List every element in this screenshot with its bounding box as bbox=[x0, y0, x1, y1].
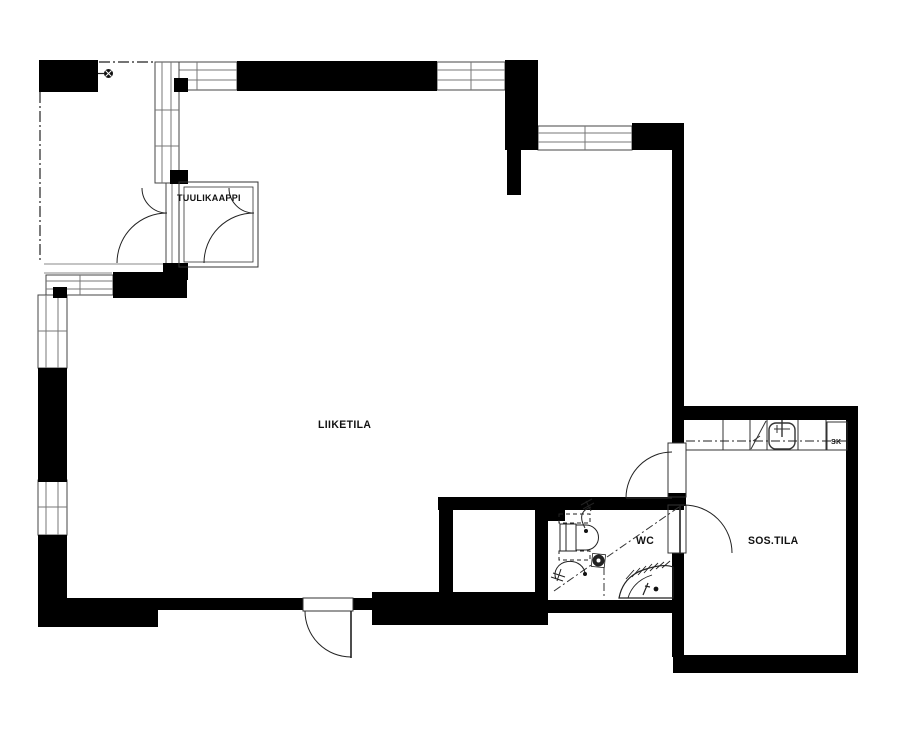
room-label-wc: WC bbox=[636, 535, 654, 547]
door-wc bbox=[680, 505, 732, 553]
door-frame bbox=[668, 505, 686, 553]
floor-plan: TUULIKAAPPI LIIKETILA WC SOS.TILA SK bbox=[0, 0, 905, 741]
wall-segment bbox=[38, 368, 67, 482]
window bbox=[38, 480, 67, 535]
room-label-liiketila: LIIKETILA bbox=[318, 419, 371, 431]
wall-segment bbox=[505, 60, 538, 150]
column-icon bbox=[98, 69, 113, 78]
wall-segment bbox=[846, 406, 858, 673]
dash-dot-boundary-lines bbox=[40, 62, 156, 263]
wall-segment bbox=[237, 61, 437, 91]
wall-segment bbox=[438, 497, 684, 510]
floor-plan-drawing bbox=[0, 0, 905, 741]
wall-segment bbox=[353, 598, 372, 610]
floor-drain-icon bbox=[591, 553, 605, 567]
wall-segment bbox=[684, 406, 858, 420]
door-frame bbox=[668, 443, 686, 497]
door-exterior-south bbox=[305, 611, 351, 658]
wall-segment bbox=[174, 78, 188, 92]
wall-segment bbox=[507, 150, 521, 195]
door-frame bbox=[303, 598, 353, 611]
wc-fixtures bbox=[551, 499, 679, 598]
window bbox=[538, 126, 632, 150]
wall-segment bbox=[163, 263, 188, 280]
corner-sink-icon bbox=[619, 561, 673, 598]
wall-segment bbox=[439, 510, 453, 598]
wall-segment bbox=[632, 123, 677, 150]
window bbox=[38, 295, 67, 368]
floor-slope-lines bbox=[554, 507, 679, 598]
wall-segment bbox=[53, 287, 67, 298]
window bbox=[437, 62, 505, 90]
wall-segment bbox=[39, 60, 98, 92]
room-label-sostila: SOS.TILA bbox=[748, 535, 798, 547]
kitchen-sink-icon bbox=[769, 420, 795, 449]
door-liiketila-sostila bbox=[626, 452, 672, 498]
wall-segment bbox=[158, 598, 303, 610]
doors bbox=[117, 188, 732, 658]
wall-segment bbox=[38, 598, 158, 627]
door-frames bbox=[303, 443, 686, 611]
dishwasher-icon bbox=[751, 421, 766, 449]
wall-segment bbox=[672, 123, 684, 443]
wall-segment bbox=[372, 592, 548, 625]
wall-segment bbox=[673, 655, 858, 673]
kitchenette bbox=[686, 420, 847, 450]
wall-segment bbox=[535, 600, 684, 613]
windows bbox=[38, 62, 632, 535]
door-entrance-outer bbox=[117, 188, 167, 263]
roof-overhang-lines bbox=[44, 264, 165, 273]
room-label-tuulikaappi: TUULIKAAPPI bbox=[177, 193, 241, 204]
room-label-sk-closet: SK bbox=[831, 437, 841, 446]
